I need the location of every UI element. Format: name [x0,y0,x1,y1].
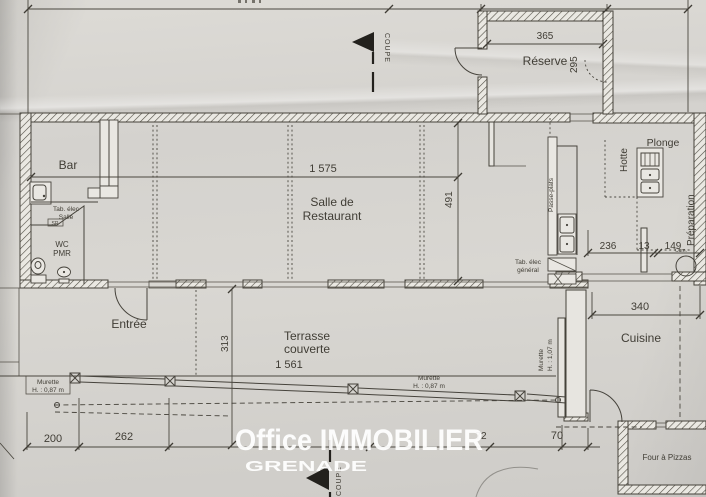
dim-salle-width: 1 575 [309,163,337,175]
dim-reserve-depth: 295 [569,56,580,73]
room-label-reserve: Réserve [523,54,568,68]
room-label-preparation: Préparation [686,194,697,246]
dim-bottom-70: 70 [551,430,563,442]
floor-plan-drawing: COUPE COUPE Bar Salle de Restaurant Rése… [0,0,706,497]
dim-prep-b: 13 [638,241,650,252]
watermark: Office IMMOBILIER GRENADE [235,424,483,475]
dim-cuisine-width: 340 [631,301,649,313]
dim-bottom-200: 200 [44,433,62,445]
room-label-entree: Entrée [111,317,147,331]
electrical-panel [548,258,576,284]
dim-terrasse-depth: 313 [220,335,231,352]
coupe-marker-top: COUPE [352,32,390,92]
coupe-label: COUPE [383,33,390,63]
dim-bottom-262: 262 [115,431,133,443]
label-murette-107: H. : 1,07 m [547,339,554,371]
dim-prep-a: 236 [600,241,617,252]
room-label-terrasse: Terrasse [284,329,330,343]
annotations: Tab. élec Salle SR Tab. élec général Cum… [32,206,687,394]
room-label-wc: WC [55,240,69,249]
fixtures [30,120,696,284]
bar-counter [88,120,118,198]
dim-terrasse-width: 1 561 [275,359,303,371]
room-label-cuisine: Cuisine [621,331,661,345]
plonge-sink-icon [637,148,663,197]
washbasin-icon [58,267,71,283]
room-label-salle: Salle de [310,195,354,209]
paper-crease-line [476,467,538,497]
dim-salle-depth: 491 [444,191,455,208]
label-tab-elec-salle: Tab. élec [53,206,80,213]
label-murette-087-mid: Murette [418,375,440,382]
dashed-lines [55,118,691,427]
coupe-arrow-icon [352,32,374,52]
label-sr: SR [52,221,59,227]
label-murette-107: Murette [538,349,545,371]
dim-prep-c: 149 [665,241,682,252]
label-tab-elec-general: Tab. élec [515,259,542,266]
dim-reserve-width: 365 [537,31,554,42]
cropped-dimension-text [238,0,261,3]
label-tab-elec-general: général [517,267,539,274]
watermark-agency-name: Office IMMOBILIER [235,424,483,457]
murette-post [70,373,525,401]
label-murette-087: Murette [37,379,59,386]
room-label-salle: Restaurant [303,209,362,223]
room-label-four-pizzas: Four à Pizzas [643,453,692,462]
watermark-city: GRENADE [245,458,367,475]
room-label-plonge: Plonge [647,137,680,149]
bar-sink-icon [30,182,51,204]
label-tab-elec-salle: Salle [59,214,74,221]
room-label-bar: Bar [59,158,78,172]
door-arcs [115,48,622,422]
walls [20,11,706,494]
room-label-hotte: Hotte [619,148,630,172]
label-murette-087-mid: H. : 0,87 m [413,383,445,390]
murette-south [26,373,566,403]
room-label-passe-plats: Passe-plats [548,177,555,212]
room-label-wc: PMR [53,249,71,258]
toilet-icon [31,258,46,283]
room-label-terrasse: couverte [284,342,330,356]
label-murette-087: H. : 0,87 m [32,387,64,394]
floor-plan-photo: COUPE COUPE Bar Salle de Restaurant Rése… [0,0,706,497]
